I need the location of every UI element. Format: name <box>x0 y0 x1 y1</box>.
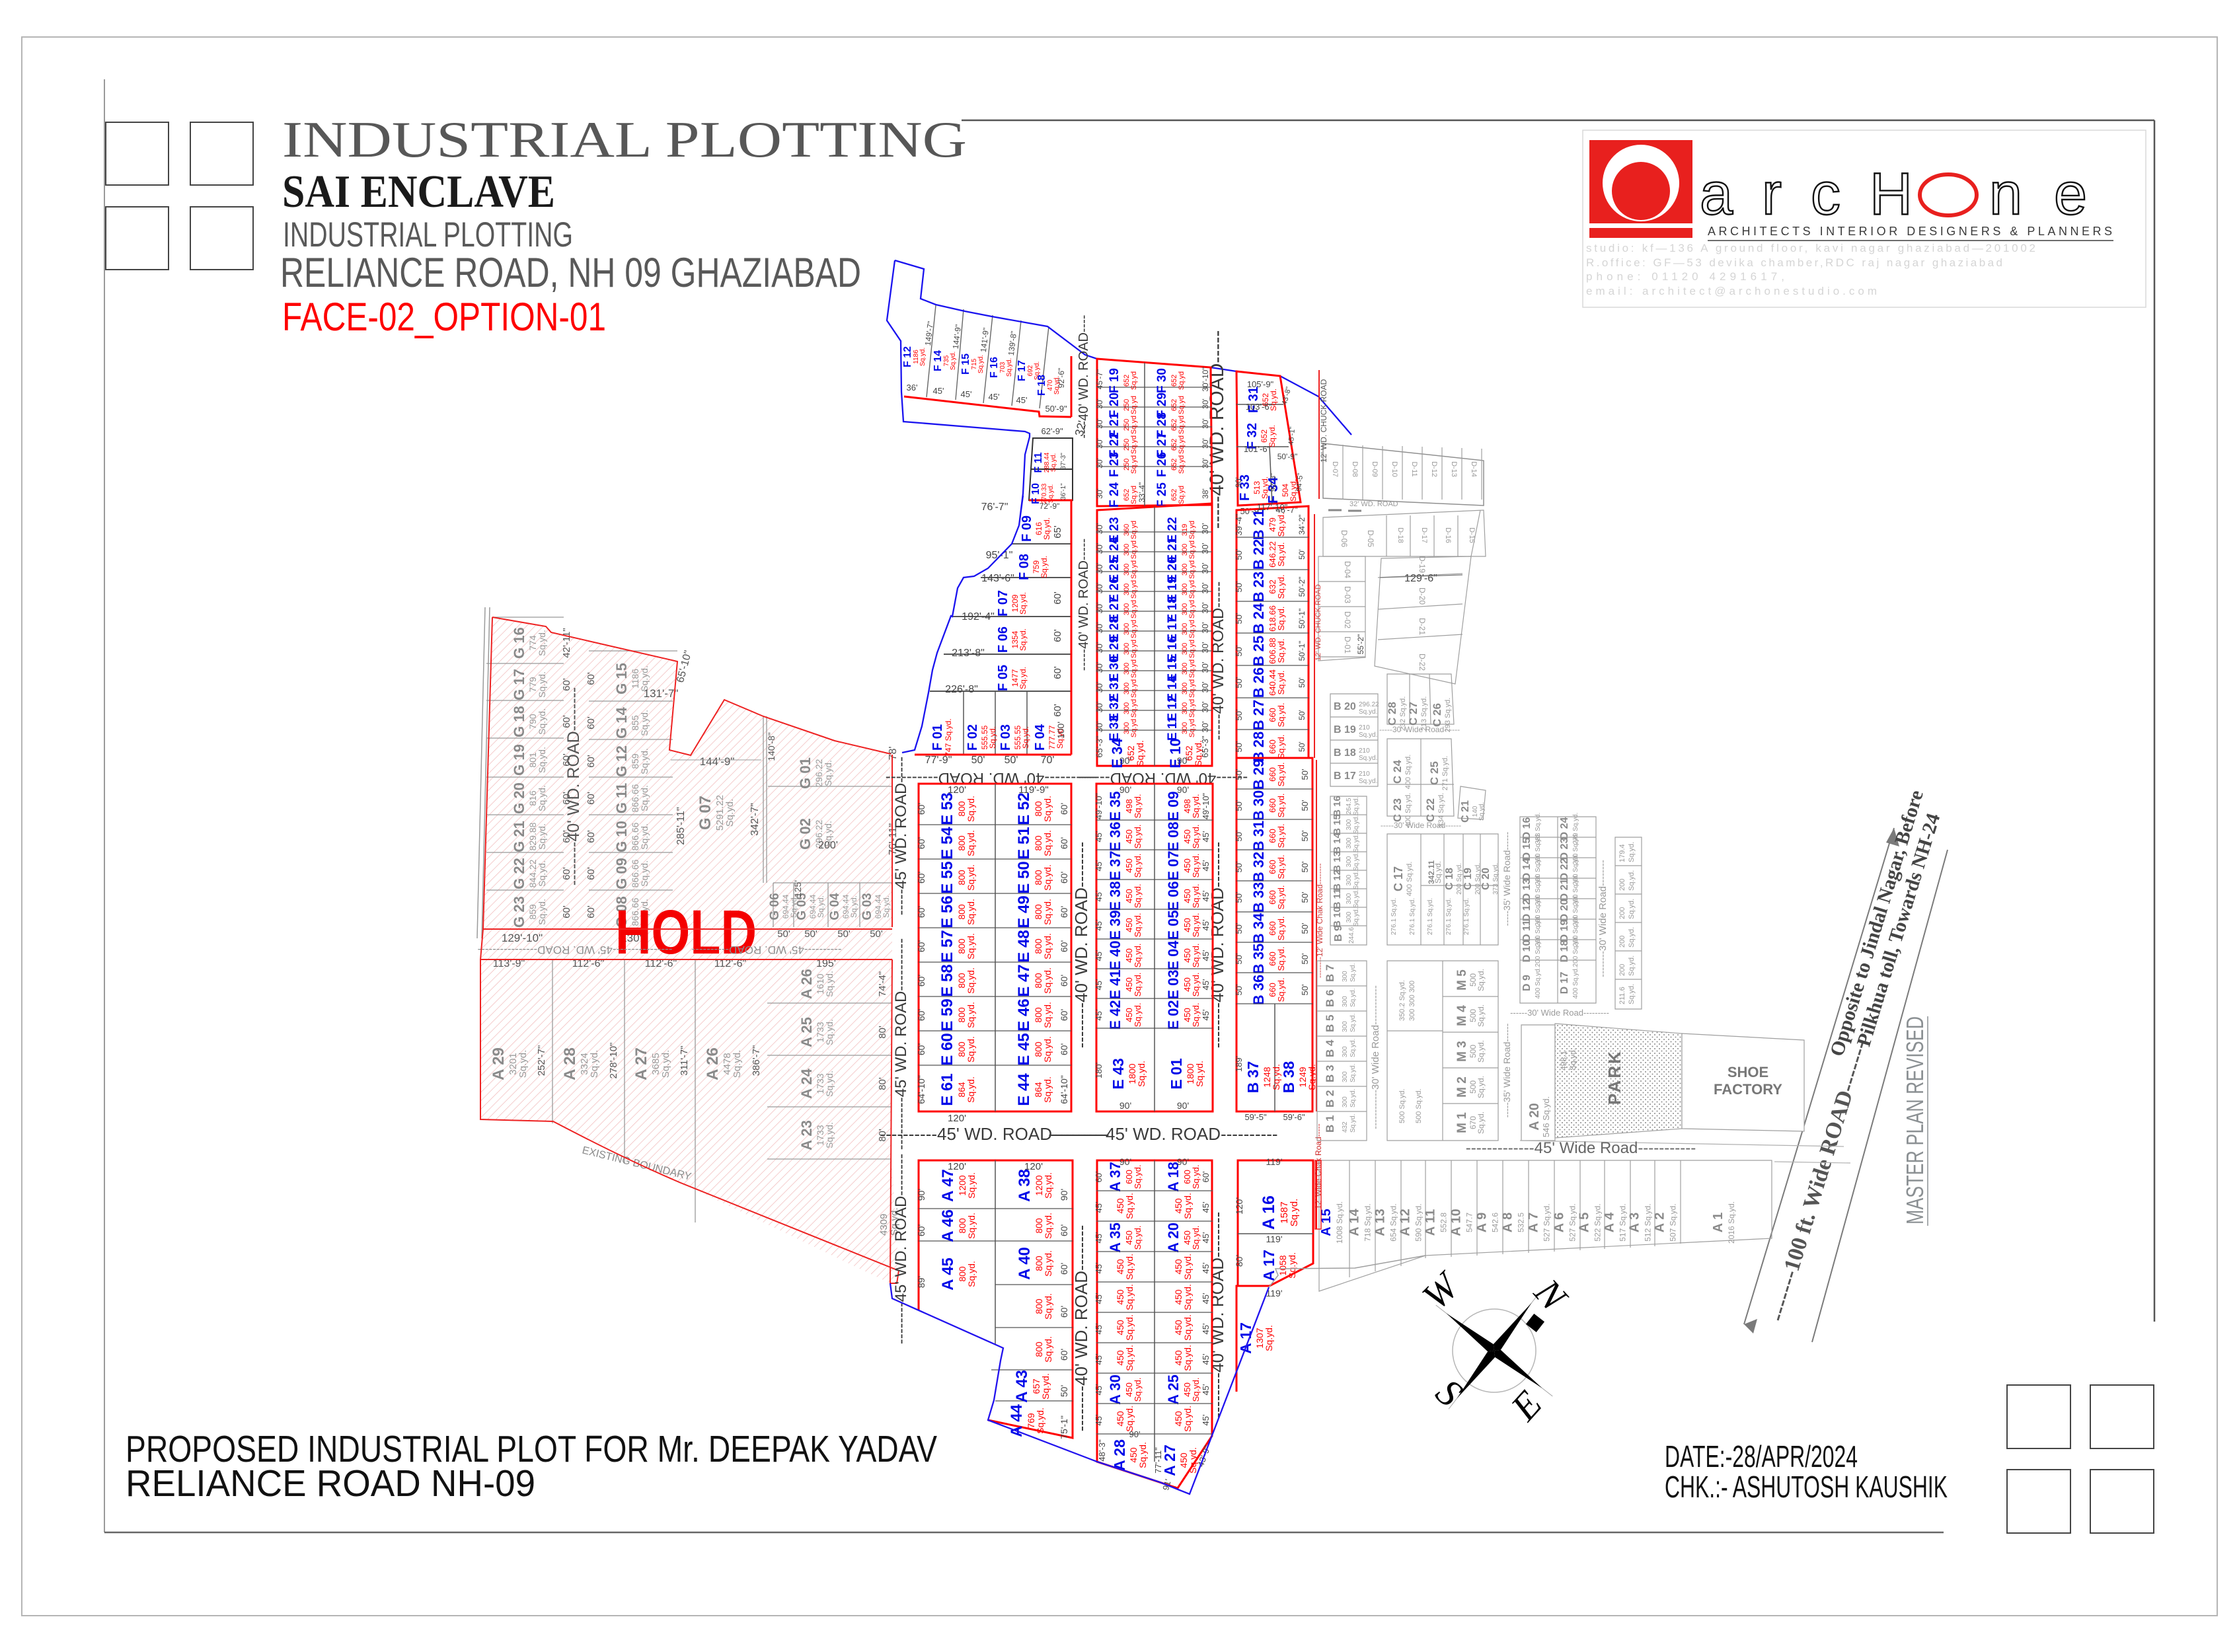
svg-text:Sq.yd.: Sq.yd. <box>1359 778 1377 785</box>
svg-text:B 30: B 30 <box>1250 790 1267 821</box>
svg-text:Sq.yd.: Sq.yd. <box>977 355 985 373</box>
svg-text:12' WD. CHUCK ROAD: 12' WD. CHUCK ROAD <box>1319 379 1328 463</box>
svg-text:G 12: G 12 <box>613 745 630 777</box>
svg-text:45': 45' <box>1201 860 1211 872</box>
svg-text:Sq.yd.: Sq.yd. <box>1043 1336 1053 1363</box>
svg-text:D 10: D 10 <box>1521 940 1533 963</box>
svg-text:-----35' Wide Road------: -----35' Wide Road------ <box>1501 1023 1512 1117</box>
svg-text:311'-7": 311'-7" <box>679 1045 690 1075</box>
svg-text:E 05: E 05 <box>1165 910 1182 940</box>
svg-text:G 19: G 19 <box>511 744 527 776</box>
svg-text:--------40' WD. ROAD--------: --------40' WD. ROAD-------- <box>564 687 583 886</box>
svg-text:E 55: E 55 <box>938 861 956 893</box>
svg-text:E 04: E 04 <box>1165 940 1182 971</box>
svg-text:12' WD. CHUCK ROAD: 12' WD. CHUCK ROAD <box>1314 584 1322 661</box>
svg-text:-------------45' Wide Road----: -------------45' Wide Road----------- <box>1466 1139 1696 1157</box>
svg-text:30': 30' <box>1200 563 1210 574</box>
svg-text:Sq.yd.: Sq.yd. <box>537 785 547 811</box>
svg-text:G 02: G 02 <box>797 818 814 850</box>
svg-text:45': 45' <box>1201 1415 1211 1426</box>
svg-text:G 15: G 15 <box>613 663 630 695</box>
svg-text:E 36: E 36 <box>1107 821 1123 851</box>
svg-text:Sq.yd: Sq.yd <box>1188 521 1196 539</box>
svg-text:Sq.yd.: Sq.yd. <box>1136 1061 1147 1087</box>
svg-text:180': 180' <box>1094 1063 1104 1078</box>
svg-text:50': 50' <box>1234 985 1244 996</box>
svg-text:Sq.yd.: Sq.yd. <box>919 348 927 366</box>
svg-text:FACE-02_OPTION-01: FACE-02_OPTION-01 <box>282 295 606 339</box>
svg-text:G 22: G 22 <box>511 858 527 889</box>
svg-text:Sq.yd.: Sq.yd. <box>1035 1408 1045 1434</box>
svg-text:D 23: D 23 <box>1559 838 1570 860</box>
svg-text:Sq.yd: Sq.yd <box>1130 396 1138 414</box>
svg-text:M 3: M 3 <box>1455 1041 1469 1062</box>
svg-text:Sq.yd.: Sq.yd. <box>966 1213 977 1239</box>
svg-text:60': 60' <box>1052 666 1063 679</box>
svg-text:Sq.yd: Sq.yd <box>1130 580 1138 599</box>
svg-text:D 11: D 11 <box>1521 920 1533 942</box>
svg-text:B 1: B 1 <box>1324 1115 1336 1133</box>
svg-text:45'-1": 45'-1" <box>1287 426 1297 445</box>
svg-text:30': 30' <box>1200 543 1210 554</box>
svg-text:Sq.yd: Sq.yd <box>1130 719 1138 737</box>
svg-text:30': 30' <box>1094 563 1104 574</box>
svg-text:--------40' WD. ROAD--------: --------40' WD. ROAD-------- <box>1071 842 1091 1049</box>
svg-text:M 5: M 5 <box>1455 969 1469 991</box>
svg-text:B 35: B 35 <box>1250 944 1267 974</box>
svg-text:E 49: E 49 <box>1015 895 1033 928</box>
svg-text:Sq.yd.: Sq.yd. <box>1191 854 1201 878</box>
svg-text:125': 125' <box>792 880 803 897</box>
svg-text:Sq.yd: Sq.yd <box>1188 640 1196 658</box>
svg-text:A 25: A 25 <box>798 1017 815 1047</box>
svg-text:A 11: A 11 <box>1423 1209 1438 1236</box>
svg-text:Sq.yd.: Sq.yd. <box>1353 889 1360 908</box>
svg-text:A 9: A 9 <box>1475 1213 1490 1232</box>
svg-text:D-19: D-19 <box>1418 556 1427 573</box>
svg-text:F 09: F 09 <box>1020 515 1034 542</box>
svg-text:Sq.yd.: Sq.yd. <box>966 864 976 891</box>
svg-text:Sq.yd.: Sq.yd. <box>1191 913 1201 938</box>
svg-text:D 18: D 18 <box>1559 940 1570 963</box>
svg-text:129'-6": 129'-6" <box>1404 573 1437 584</box>
svg-text:300: 300 <box>1346 874 1353 885</box>
svg-text:D-17: D-17 <box>1420 527 1428 543</box>
svg-text:45': 45' <box>1201 979 1211 991</box>
svg-text:-----40' WD. ROAD-----: -----40' WD. ROAD----- <box>1077 539 1091 671</box>
svg-text:498.1: 498.1 <box>1559 1051 1568 1070</box>
svg-text:B 13: B 13 <box>1332 851 1343 872</box>
svg-text:45': 45' <box>1094 920 1104 931</box>
svg-text:60': 60' <box>586 830 597 843</box>
svg-text:SAI ENCLAVE: SAI ENCLAVE <box>282 167 555 217</box>
svg-text:74'-4": 74'-4" <box>877 971 888 996</box>
svg-text:F 07: F 07 <box>996 590 1010 617</box>
svg-text:60': 60' <box>1059 1009 1069 1021</box>
svg-text:F 19: F 19 <box>1108 368 1121 393</box>
svg-text:Sq.yd.: Sq.yd. <box>1628 956 1636 976</box>
svg-text:45': 45' <box>933 386 944 396</box>
svg-text:300: 300 <box>1346 856 1353 867</box>
svg-text:B 24: B 24 <box>1250 603 1267 634</box>
svg-text:F 30: F 30 <box>1155 368 1169 393</box>
svg-text:E 03: E 03 <box>1165 969 1182 999</box>
svg-text:Sq.yd: Sq.yd <box>1178 396 1186 414</box>
svg-text:G 01: G 01 <box>797 757 814 789</box>
svg-text:45': 45' <box>1094 1415 1104 1426</box>
svg-text:Sq.yd.: Sq.yd. <box>639 710 650 736</box>
svg-text:B 31: B 31 <box>1250 821 1267 851</box>
svg-text:-----30' Wide Road------: -----30' Wide Road------ <box>1379 725 1460 734</box>
svg-text:Sq.yd.: Sq.yd. <box>1182 1314 1193 1341</box>
svg-text:A 6: A 6 <box>1552 1213 1567 1232</box>
svg-text:50': 50' <box>1234 862 1244 873</box>
svg-text:213'-8": 213'-8" <box>952 648 985 659</box>
svg-text:49'-10": 49'-10" <box>1094 792 1104 819</box>
svg-text:Sq.yd.: Sq.yd. <box>1276 917 1286 941</box>
svg-text:Sq.yd.: Sq.yd. <box>1124 1254 1135 1280</box>
svg-text:30': 30' <box>1095 438 1104 449</box>
svg-text:2016 Sq.yd.: 2016 Sq.yd. <box>1727 1201 1736 1244</box>
svg-text:G 21: G 21 <box>511 821 527 852</box>
svg-text:Sq.yd.: Sq.yd. <box>1133 1165 1143 1189</box>
svg-text:Sq.yd: Sq.yd <box>1188 580 1196 599</box>
svg-text:60': 60' <box>1052 629 1063 642</box>
svg-text:D-11: D-11 <box>1410 461 1418 476</box>
svg-text:119': 119' <box>1266 1234 1283 1244</box>
svg-text:276.1 Sq.yd.: 276.1 Sq.yd. <box>1463 898 1470 935</box>
svg-text:Sq.yd.: Sq.yd. <box>824 1019 835 1045</box>
svg-text:189': 189' <box>1234 1056 1244 1072</box>
svg-text:300: 300 <box>1346 893 1353 904</box>
svg-text:RELIANCE ROAD NH-09: RELIANCE ROAD NH-09 <box>126 1462 535 1505</box>
svg-text:Sq.yd: Sq.yd <box>1130 679 1138 698</box>
svg-text:Sq.yd.: Sq.yd. <box>1182 1345 1193 1371</box>
svg-text:50': 50' <box>1300 862 1310 873</box>
svg-text:D 24: D 24 <box>1559 817 1570 840</box>
svg-text:Sq.yd.: Sq.yd. <box>1124 1284 1135 1310</box>
svg-text:Sq.yd.: Sq.yd. <box>1182 1406 1193 1432</box>
svg-text:Sq.yd.: Sq.yd. <box>1276 978 1286 1002</box>
svg-text:F 05: F 05 <box>996 665 1010 691</box>
svg-text:Sq.yd: Sq.yd <box>1178 486 1186 504</box>
svg-text:D 14: D 14 <box>1521 858 1533 881</box>
svg-text:45'-7": 45'-7" <box>1095 369 1104 390</box>
svg-text:Sq.yd.: Sq.yd. <box>1353 834 1360 852</box>
svg-text:Sq.yd.: Sq.yd. <box>988 726 997 749</box>
svg-text:77'-9": 77'-9" <box>925 755 952 766</box>
svg-text:30': 30' <box>1200 622 1210 634</box>
svg-text:D 20: D 20 <box>1559 899 1570 922</box>
svg-text:F 16: F 16 <box>989 357 1000 378</box>
svg-text:55'-2": 55'-2" <box>1356 634 1365 655</box>
svg-text:Sq.yd: Sq.yd <box>1130 435 1138 454</box>
svg-text:A 40: A 40 <box>1016 1247 1034 1280</box>
svg-text:60': 60' <box>1059 1263 1069 1275</box>
svg-text:300: 300 <box>1346 911 1353 922</box>
svg-text:G 18: G 18 <box>511 706 527 737</box>
svg-text:60': 60' <box>586 716 597 730</box>
svg-text:120': 120' <box>948 1161 966 1172</box>
svg-text:Sq.yd.: Sq.yd. <box>732 1050 743 1078</box>
svg-text:Sq.yd.: Sq.yd. <box>1568 1048 1577 1070</box>
svg-text:E 08: E 08 <box>1165 821 1182 851</box>
svg-text:Sq.yd.: Sq.yd. <box>1276 513 1286 537</box>
svg-text:Sq.yd.: Sq.yd. <box>824 1122 835 1148</box>
svg-text:45': 45' <box>1201 1354 1211 1365</box>
svg-text:30': 30' <box>1200 662 1210 673</box>
svg-text:Sq.yd.: Sq.yd. <box>1276 607 1286 631</box>
svg-text:244.6: 244.6 <box>1348 927 1355 944</box>
svg-text:200 Sq.yd.: 200 Sq.yd. <box>1572 936 1579 967</box>
svg-text:129'-10": 129'-10" <box>502 932 543 944</box>
svg-text:50': 50' <box>971 755 985 766</box>
svg-text:552.8: 552.8 <box>1439 1213 1449 1232</box>
svg-text:30'-10": 30'-10" <box>1201 367 1210 391</box>
svg-text:A 5: A 5 <box>1577 1213 1592 1232</box>
svg-text:89': 89' <box>916 1276 927 1288</box>
svg-text:E 09: E 09 <box>1165 791 1182 821</box>
svg-text:B 25: B 25 <box>1250 636 1267 666</box>
svg-text:A 45: A 45 <box>939 1258 957 1291</box>
svg-text:Sq.yd: Sq.yd <box>1178 435 1186 454</box>
svg-text:45': 45' <box>1201 1010 1211 1021</box>
svg-text:E 53: E 53 <box>938 792 956 825</box>
svg-text:D-22: D-22 <box>1418 654 1427 671</box>
svg-text:Sq.yd.: Sq.yd. <box>537 708 547 735</box>
svg-text:B 16: B 16 <box>1332 796 1343 817</box>
svg-text:50': 50' <box>1234 892 1244 903</box>
svg-text:95'-1": 95'-1" <box>986 550 1013 561</box>
svg-text:547.7: 547.7 <box>1465 1213 1474 1232</box>
svg-text:Sq.yd.: Sq.yd. <box>639 785 650 811</box>
svg-text:email: architect@archonestudio: email: architect@archonestudio.com <box>1586 285 1877 297</box>
svg-text:210: 210 <box>1359 724 1370 732</box>
svg-text:A 38: A 38 <box>1016 1169 1034 1202</box>
svg-text:90': 90' <box>916 1189 927 1201</box>
svg-text:50': 50' <box>1234 741 1244 753</box>
svg-text:Sq.yd.: Sq.yd. <box>537 899 547 925</box>
svg-text:----40' WD. ROAD----: ----40' WD. ROAD---- <box>1077 315 1091 438</box>
svg-text:59'-6": 59'-6" <box>1283 1112 1305 1122</box>
svg-text:45': 45' <box>1201 1263 1211 1274</box>
svg-text:E 51: E 51 <box>1015 827 1033 859</box>
svg-text:Sq.yd: Sq.yd <box>1188 541 1196 559</box>
svg-text:285'-11": 285'-11" <box>675 807 687 845</box>
svg-text:D-02: D-02 <box>1343 611 1352 628</box>
svg-text:80': 80' <box>1234 1255 1244 1267</box>
svg-text:B 37: B 37 <box>1244 1061 1262 1094</box>
svg-text:F 24: F 24 <box>1108 482 1121 507</box>
svg-text:30': 30' <box>1094 662 1104 673</box>
svg-text:Sq.yd.: Sq.yd. <box>537 823 547 850</box>
svg-text:E 43: E 43 <box>1110 1058 1127 1089</box>
svg-text:50': 50' <box>1234 923 1244 934</box>
svg-text:144'-9": 144'-9" <box>700 755 735 768</box>
svg-text:C 23: C 23 <box>1391 798 1404 822</box>
svg-text:E 58: E 58 <box>938 964 956 996</box>
svg-text:80': 80' <box>877 1026 888 1039</box>
svg-text:432: 432 <box>1342 1121 1349 1133</box>
svg-text:A 29: A 29 <box>490 1047 508 1080</box>
svg-text:30': 30' <box>1200 702 1210 713</box>
svg-text:G 09: G 09 <box>613 858 630 889</box>
svg-text:60': 60' <box>1052 591 1063 605</box>
svg-text:Sq.yd: Sq.yd <box>1130 541 1138 559</box>
svg-text:Sq.yd.: Sq.yd. <box>1628 842 1636 862</box>
svg-text:60': 60' <box>1059 940 1069 952</box>
svg-text:Sq.yd.: Sq.yd. <box>1133 944 1143 968</box>
svg-text:50': 50' <box>1234 613 1244 624</box>
svg-text:Sq.yd.: Sq.yd. <box>1476 1076 1486 1098</box>
svg-text:E 41: E 41 <box>1107 969 1123 999</box>
svg-text:Sq.yd.: Sq.yd. <box>1289 1199 1300 1227</box>
svg-text:Sq.yd: Sq.yd <box>1130 560 1138 579</box>
svg-text:50': 50' <box>1234 769 1244 780</box>
svg-text:Sq.yd.: Sq.yd. <box>1043 1213 1053 1239</box>
svg-text:527 Sq.yd.: 527 Sq.yd. <box>1542 1203 1552 1241</box>
svg-text:M 1: M 1 <box>1455 1112 1469 1133</box>
svg-text:527 Sq.yd.: 527 Sq.yd. <box>1568 1203 1577 1241</box>
svg-text:60': 60' <box>1059 1224 1069 1236</box>
svg-text:Sq.yd.: Sq.yd. <box>824 971 835 997</box>
svg-text:45': 45' <box>1201 891 1211 902</box>
svg-text:Sq.yd.: Sq.yd. <box>1191 1378 1201 1402</box>
svg-text:210: 210 <box>1359 747 1370 755</box>
svg-text:----------45' WD. ROAD--------: ----------45' WD. ROAD---------- <box>892 938 910 1150</box>
svg-text:542.6: 542.6 <box>1491 1213 1500 1232</box>
svg-text:Sq.yd: Sq.yd <box>1188 699 1196 718</box>
svg-text:D-20: D-20 <box>1418 587 1427 605</box>
svg-text:A 30: A 30 <box>1107 1374 1123 1405</box>
svg-text:E 02: E 02 <box>1165 1000 1182 1030</box>
svg-text:Sq.yd.: Sq.yd. <box>1191 973 1201 997</box>
svg-text:Sq.yd.: Sq.yd. <box>1349 1089 1357 1108</box>
svg-text:50': 50' <box>1234 710 1244 721</box>
svg-text:50': 50' <box>777 928 790 940</box>
svg-text:30': 30' <box>1094 682 1104 693</box>
svg-text:F 15: F 15 <box>960 354 971 375</box>
svg-text:E 38: E 38 <box>1107 881 1123 911</box>
svg-text:Sq.yd.: Sq.yd. <box>966 1036 976 1063</box>
svg-text:Sq.yd.: Sq.yd. <box>1191 1003 1201 1028</box>
svg-text:D 17: D 17 <box>1559 972 1570 995</box>
svg-text:131'-7": 131'-7" <box>644 687 679 700</box>
svg-text:Sq.yd.: Sq.yd. <box>1042 1002 1053 1028</box>
svg-text:A 46: A 46 <box>939 1209 957 1242</box>
svg-text:Sq.yd.: Sq.yd. <box>966 1261 977 1287</box>
svg-text:Sq.yd.: Sq.yd. <box>1276 947 1286 971</box>
svg-text:D 13: D 13 <box>1521 879 1533 901</box>
svg-text:Sq.yd.: Sq.yd. <box>1133 854 1143 878</box>
svg-text:A 25: A 25 <box>1165 1374 1182 1405</box>
svg-text:RELIANCE ROAD, NH 09 GHAZIABAD: RELIANCE ROAD, NH 09 GHAZIABAD <box>280 250 861 296</box>
svg-text:60': 60' <box>916 872 927 883</box>
svg-text:50': 50' <box>1300 769 1310 780</box>
svg-text:Sq.yd.: Sq.yd. <box>1264 1325 1274 1351</box>
svg-text:50': 50' <box>1300 954 1310 965</box>
svg-text:60': 60' <box>916 906 927 918</box>
svg-text:300: 300 <box>1342 1096 1349 1108</box>
svg-text:50': 50' <box>1234 677 1244 689</box>
svg-text:200: 200 <box>1618 936 1626 948</box>
svg-text:50': 50' <box>1297 677 1307 688</box>
svg-text:D-04: D-04 <box>1343 561 1352 578</box>
svg-text:Sq.yd.: Sq.yd. <box>1349 963 1357 982</box>
svg-text:718 Sq.yd.: 718 Sq.yd. <box>1363 1203 1373 1241</box>
svg-text:A 7: A 7 <box>1527 1213 1541 1232</box>
svg-text:-----35' Wide Road------: -----35' Wide Road------ <box>1501 831 1512 926</box>
svg-text:45': 45' <box>1094 1293 1104 1304</box>
svg-text:50': 50' <box>1234 800 1244 811</box>
svg-text:M 4: M 4 <box>1455 1005 1469 1026</box>
svg-text:Sq.yd.: Sq.yd. <box>1628 927 1636 948</box>
svg-text:B 33: B 33 <box>1250 882 1267 913</box>
svg-text:Sq.yd.: Sq.yd. <box>1050 453 1057 472</box>
svg-text:G 04: G 04 <box>828 893 842 920</box>
svg-text:75'-1": 75'-1" <box>1059 1415 1069 1439</box>
svg-text:Sq.yd.: Sq.yd. <box>1042 517 1051 540</box>
svg-text:F 14: F 14 <box>932 350 944 371</box>
svg-text:A 4: A 4 <box>1603 1212 1617 1232</box>
svg-text:90': 90' <box>1177 1100 1189 1111</box>
svg-text:M 2: M 2 <box>1455 1076 1469 1098</box>
svg-text:D-13: D-13 <box>1450 461 1458 477</box>
svg-text:120': 120' <box>948 784 966 796</box>
svg-text:120': 120' <box>948 1113 966 1124</box>
svg-text:45': 45' <box>1201 950 1211 961</box>
svg-text:30': 30' <box>1201 398 1210 409</box>
svg-text:Sq.yd.: Sq.yd. <box>1042 1076 1053 1103</box>
svg-text:Sq.yd: Sq.yd <box>1130 620 1138 638</box>
svg-text:37'-3": 37'-3" <box>1060 453 1067 470</box>
svg-text:E 06: E 06 <box>1165 881 1182 911</box>
svg-text:532.5: 532.5 <box>1517 1213 1526 1232</box>
svg-text:Sq.yd.: Sq.yd. <box>724 799 736 827</box>
svg-text:Sq.yd: Sq.yd <box>1188 659 1196 678</box>
svg-text:G 06: G 06 <box>768 893 782 920</box>
svg-text:E 01: E 01 <box>1168 1058 1185 1090</box>
svg-text:50': 50' <box>1234 831 1244 842</box>
svg-text:Sq.yd.: Sq.yd. <box>1133 973 1143 997</box>
svg-text:Sq.yd.: Sq.yd. <box>1276 763 1286 787</box>
svg-text:30': 30' <box>1094 642 1104 654</box>
svg-text:103'-6": 103'-6" <box>1246 402 1273 412</box>
svg-text:--------45' WD. ROAD--------: --------45' WD. ROAD-------- <box>892 1154 910 1344</box>
svg-text:D 16: D 16 <box>1521 817 1533 840</box>
svg-text:E 52: E 52 <box>1015 792 1033 825</box>
svg-text:Sq.yd.: Sq.yd. <box>1353 908 1360 926</box>
svg-text:Sq.yd.: Sq.yd. <box>1042 967 1053 994</box>
svg-text:50'-9": 50'-9" <box>1277 452 1298 461</box>
svg-text:60': 60' <box>916 803 927 815</box>
svg-text:C 26: C 26 <box>1431 703 1443 727</box>
svg-text:A 2: A 2 <box>1653 1213 1667 1232</box>
svg-text:G 16: G 16 <box>511 627 527 659</box>
svg-text:264.5: 264.5 <box>1346 798 1353 814</box>
svg-text:G 10: G 10 <box>613 821 630 852</box>
svg-text:C 19: C 19 <box>1462 868 1474 890</box>
svg-text:200 Sq.yd.: 200 Sq.yd. <box>1535 936 1542 967</box>
svg-text:B 32: B 32 <box>1250 852 1267 882</box>
svg-text:B 15: B 15 <box>1332 814 1343 835</box>
svg-text:Sq.yd.: Sq.yd. <box>1276 885 1286 910</box>
svg-text:Sq.yd.: Sq.yd. <box>1276 824 1286 848</box>
svg-text:300: 300 <box>1342 1046 1349 1057</box>
svg-text:30': 30' <box>1094 543 1104 554</box>
svg-text:90': 90' <box>1059 1189 1069 1201</box>
svg-text:92'-3": 92'-3" <box>1270 473 1277 492</box>
